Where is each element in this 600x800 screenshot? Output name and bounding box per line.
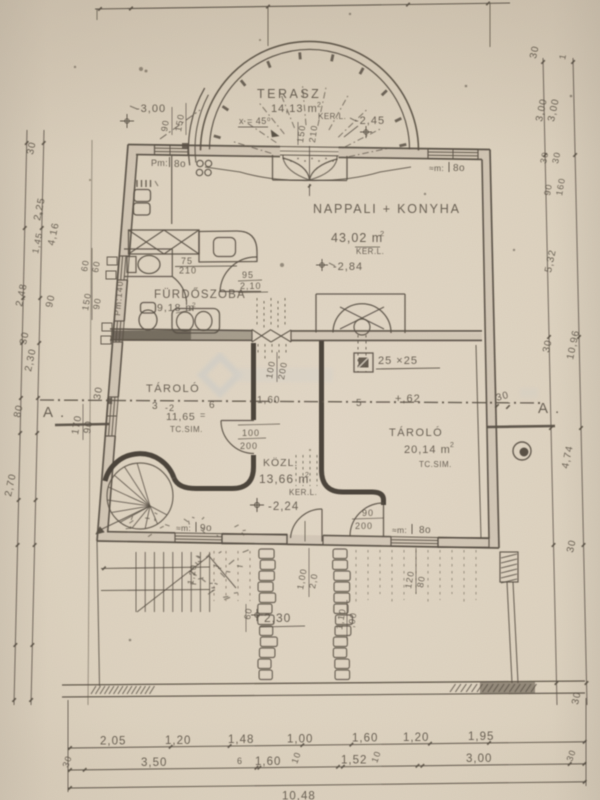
svg-text:2: 2 [305,472,310,479]
svg-text:30: 30 [92,386,105,401]
svg-text:1,52: 1,52 [341,755,367,767]
svg-text:80: 80 [415,575,427,589]
svg-text:3,50: 3,50 [141,757,167,769]
svg-text:TÁROLÓ: TÁROLÓ [146,382,200,395]
svg-text:1,20: 1,20 [165,735,191,747]
svg-text:200: 200 [240,441,258,451]
svg-text:8o: 8o [174,159,186,170]
svg-text:o: o [267,117,271,123]
svg-text:NAPPALI + KONYHA: NAPPALI + KONYHA [313,202,461,216]
svg-text:90: 90 [542,183,554,197]
svg-text:KÖZL.: KÖZL. [263,457,298,469]
svg-text:-3,00: -3,00 [136,103,166,115]
svg-text:9,18 m: 9,18 m [157,302,195,314]
svg-text:5: 5 [356,398,363,409]
svg-text:8o: 8o [419,525,431,536]
svg-text:14,13 m: 14,13 m [271,103,318,115]
svg-text:A: A [43,404,55,421]
svg-text:8o: 8o [453,163,465,174]
svg-text:TÁROLÓ: TÁROLÓ [389,426,443,439]
svg-text:90: 90 [362,508,374,518]
svg-text:1,95: 1,95 [468,731,494,743]
svg-text:9o: 9o [200,523,212,534]
svg-text:1,60: 1,60 [255,756,281,768]
svg-text:≈m:: ≈m: [392,525,407,535]
svg-text:TC.SIM.: TC.SIM. [419,460,452,469]
svg-text:95: 95 [242,270,254,280]
svg-text:3,00: 3,00 [466,753,492,765]
svg-text:90: 90 [82,420,95,435]
svg-text:2,05: 2,05 [100,736,126,748]
svg-text:20,14 m: 20,14 m [404,444,451,456]
svg-text:11,65: 11,65 [166,411,196,423]
svg-text:13,66 m: 13,66 m [259,472,309,486]
svg-text:≈m:: ≈m: [429,163,444,173]
svg-text:3: 3 [152,401,159,412]
svg-text:6: 6 [209,400,216,411]
svg-text:1,60: 1,60 [257,395,280,406]
svg-text:25 ×25: 25 ×25 [378,355,418,367]
svg-text:10,48: 10,48 [282,790,316,800]
svg-text:1,00: 1,00 [287,733,313,745]
svg-text:60: 60 [242,607,254,621]
svg-text:1,60: 1,60 [352,733,378,745]
svg-text:.: . [555,400,560,417]
svg-text:FÜRDŐSZOBA: FÜRDŐSZOBA [154,287,246,301]
svg-text:TERASZ: TERASZ [257,87,321,101]
svg-text:210: 210 [179,266,197,276]
svg-text:100: 100 [242,428,260,438]
svg-text:KER.L.: KER.L. [289,488,317,497]
svg-text:2,30: 2,30 [264,611,291,625]
svg-text:KER.L.: KER.L. [356,247,384,256]
svg-text:x = 45: x = 45 [239,116,267,126]
svg-text:90: 90 [159,119,171,133]
svg-text:KER.L.: KER.L. [318,112,346,121]
svg-text:+,62: +,62 [395,393,421,405]
svg-text:90: 90 [91,297,103,311]
svg-text:TC.SIM.: TC.SIM. [170,425,203,434]
svg-text:200: 200 [355,521,373,531]
svg-text:6: 6 [237,756,243,766]
svg-text:-2,84: -2,84 [333,261,363,273]
svg-text:-2,24: -2,24 [268,501,299,513]
svg-text:2: 2 [192,302,197,309]
svg-text:-2,45: -2,45 [355,115,385,127]
svg-text:2: 2 [380,229,385,238]
svg-text:=: = [200,410,206,420]
svg-text:2: 2 [317,102,322,109]
svg-text:.: . [60,404,65,421]
svg-text:75: 75 [181,256,193,266]
svg-text:≈m:: ≈m: [176,523,191,533]
svg-text:2: 2 [450,442,455,449]
svg-text:1,20: 1,20 [403,732,429,744]
svg-text:Pm:: Pm: [151,158,168,168]
svg-text:1,48: 1,48 [228,734,254,746]
svg-text:60: 60 [79,259,91,273]
svg-text:43,02 m: 43,02 m [331,231,383,245]
